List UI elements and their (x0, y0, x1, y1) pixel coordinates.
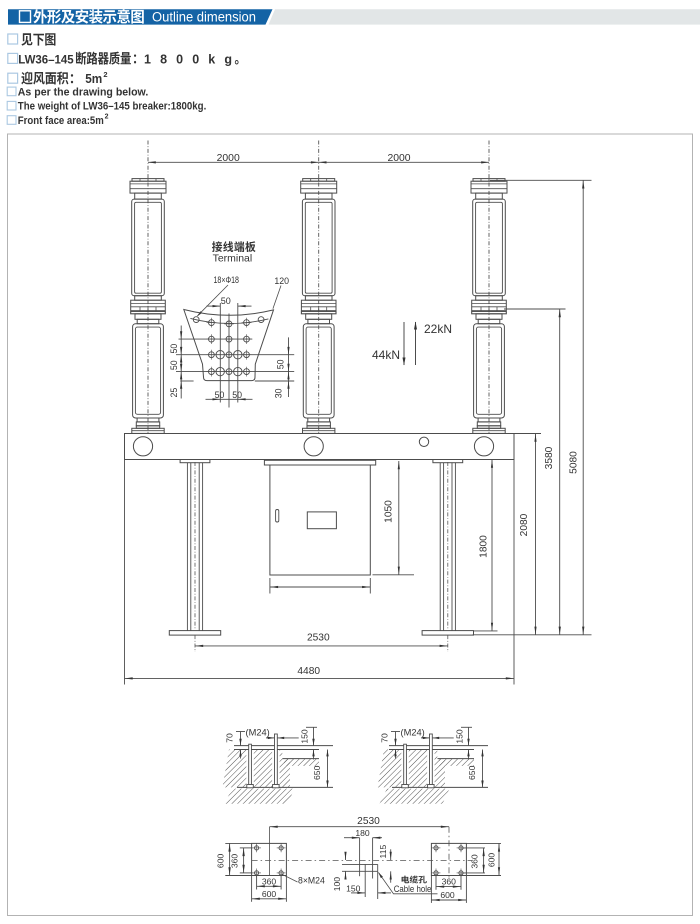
svg-text:650: 650 (467, 765, 477, 780)
svg-text:(M24): (M24) (401, 728, 425, 738)
svg-text:120: 120 (274, 276, 289, 286)
svg-text:70: 70 (380, 733, 390, 743)
svg-text:Terminal: Terminal (213, 253, 253, 265)
svg-text:8×M24: 8×M24 (298, 876, 325, 886)
svg-text:50: 50 (215, 390, 225, 400)
svg-text:360: 360 (262, 876, 277, 886)
svg-text:50: 50 (276, 359, 286, 369)
svg-text:LW36–145: LW36–145 (18, 52, 74, 66)
svg-text:100: 100 (332, 877, 342, 892)
svg-text:2000: 2000 (387, 153, 410, 164)
svg-text:2000: 2000 (217, 153, 240, 164)
svg-text:1800: 1800 (478, 535, 489, 558)
svg-text:600: 600 (215, 854, 225, 869)
svg-text:360: 360 (442, 877, 457, 887)
svg-text:5080: 5080 (569, 451, 580, 474)
svg-text:600: 600 (487, 853, 497, 868)
svg-text:360: 360 (229, 854, 239, 869)
svg-text:150: 150 (455, 729, 465, 744)
svg-text:600: 600 (440, 890, 455, 900)
svg-text:The weight of LW36–145 breaker: The weight of LW36–145 breaker:1800kg. (18, 101, 207, 113)
svg-text:70: 70 (225, 733, 235, 743)
svg-text:50: 50 (169, 344, 179, 354)
svg-text:2530: 2530 (357, 816, 380, 827)
svg-text:50: 50 (232, 390, 242, 400)
svg-text:44kN: 44kN (372, 348, 400, 362)
svg-text:As per the drawing below.: As per the drawing below. (18, 86, 149, 98)
svg-text:1050: 1050 (384, 500, 395, 523)
svg-text:5m: 5m (85, 71, 102, 86)
svg-text:3580: 3580 (544, 446, 555, 469)
svg-text:50: 50 (221, 296, 231, 306)
svg-text:Front face area:5m: Front face area:5m (18, 115, 104, 127)
svg-text:Outline dimension: Outline dimension (152, 9, 256, 24)
svg-text:30: 30 (273, 388, 283, 398)
svg-text:600: 600 (262, 889, 277, 899)
svg-text:25: 25 (169, 388, 179, 398)
svg-text:22kN: 22kN (424, 322, 452, 336)
svg-text:2530: 2530 (307, 633, 330, 644)
svg-text:50: 50 (169, 360, 179, 370)
svg-text:180: 180 (355, 828, 370, 838)
svg-text:115: 115 (378, 845, 388, 859)
svg-text:2080: 2080 (519, 513, 530, 536)
svg-text:650: 650 (312, 765, 322, 780)
svg-text:2: 2 (105, 114, 109, 121)
svg-text:1800kg: 1800kg (144, 52, 232, 66)
svg-text:360: 360 (470, 854, 480, 869)
svg-text:(M24): (M24) (246, 728, 270, 738)
svg-text:Cable hole: Cable hole (394, 884, 432, 895)
svg-text:2: 2 (103, 70, 107, 79)
svg-text:150: 150 (300, 729, 310, 744)
svg-text:4480: 4480 (297, 666, 320, 677)
svg-text:18×Φ18: 18×Φ18 (214, 275, 240, 285)
svg-text:150: 150 (346, 883, 361, 893)
